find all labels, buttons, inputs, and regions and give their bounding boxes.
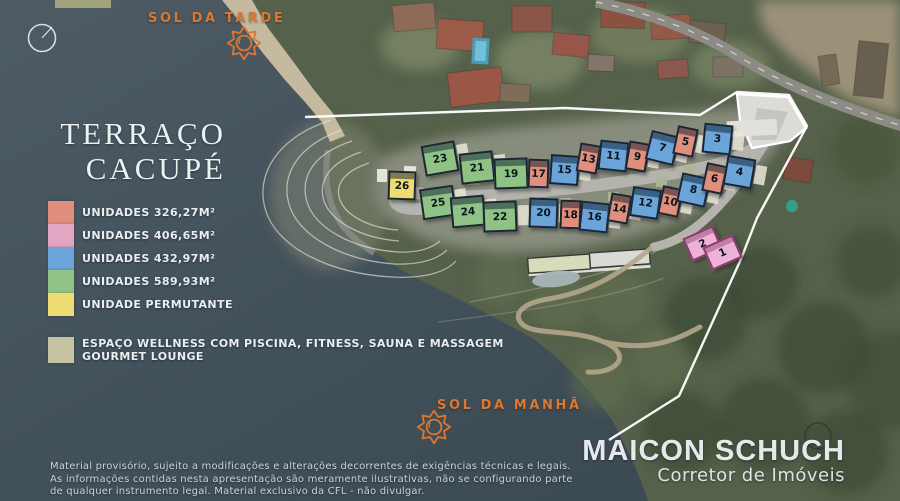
unit-lot-19[interactable]: 19: [493, 157, 528, 189]
legend-label: UNIDADE PERMUTANTE: [82, 298, 233, 311]
legend-swatch-salmon: [48, 201, 74, 224]
unit-lot-26[interactable]: 26: [388, 171, 417, 201]
disclaimer-text: Material provisório, sujeito a modificaç…: [50, 461, 573, 499]
sun-morning-label: SOL DA MANHÃ: [437, 398, 582, 413]
unit-lot-12[interactable]: 12: [629, 186, 662, 220]
unit-number: 26: [394, 179, 409, 192]
legend-item: UNIDADES 432,97M²: [48, 247, 233, 270]
unit-lot-17[interactable]: 17: [528, 159, 550, 189]
sun-afternoon-icon: [226, 25, 262, 61]
unit-number: 25: [430, 196, 446, 210]
legend-swatch-green: [48, 270, 74, 293]
unit-number: 20: [536, 207, 551, 220]
unit-number: 14: [611, 201, 627, 215]
legend-item: UNIDADES 326,27M²: [48, 201, 233, 224]
legend-item: UNIDADE PERMUTANTE: [48, 293, 233, 316]
small-pool: [786, 200, 798, 212]
legend-swatch-blue: [48, 247, 74, 270]
legend-wellness: ESPAÇO WELLNESS COM PISCINA, FITNESS, SA…: [48, 337, 504, 363]
compass-icon: [27, 21, 59, 55]
broker-watermark: MAICON SCHUCH Corretor de Imóveis: [582, 437, 845, 486]
legend-label: UNIDADES 432,97M²: [82, 252, 215, 265]
legend-label: UNIDADES 326,27M²: [82, 206, 215, 219]
project-title: TERRAÇO CACUPÉ: [38, 116, 226, 186]
broker-subtitle: Corretor de Imóveis: [582, 465, 845, 486]
broker-name: MAICON SCHUCH: [582, 437, 845, 465]
legend-label: UNIDADES 406,65M²: [82, 229, 215, 242]
unit-number: 24: [460, 205, 476, 218]
masterplan-image: 2321191715131197532625242220181614121086…: [0, 0, 900, 501]
unit-number: 15: [557, 164, 572, 177]
unit-number: 23: [432, 151, 448, 165]
unit-number: 4: [735, 165, 744, 178]
unit-number: 8: [689, 183, 699, 196]
sun-afternoon-label: SOL DA TARDE: [148, 11, 285, 26]
unit-number: 7: [658, 141, 668, 154]
unit-number: 3: [713, 133, 722, 146]
sun-morning-icon: [416, 409, 452, 445]
unit-number: 21: [469, 161, 485, 174]
partial-legend-block: [55, 0, 111, 8]
unit-lot-3[interactable]: 3: [702, 123, 734, 156]
unit-number: 13: [580, 151, 596, 165]
legend-list: UNIDADES 326,27M²UNIDADES 406,65M²UNIDAD…: [48, 201, 233, 316]
unit-number: 16: [587, 210, 603, 223]
legend-swatch-pink: [48, 224, 74, 247]
legend-item: UNIDADES 589,93M²: [48, 270, 233, 293]
unit-number: 22: [492, 210, 507, 223]
unit-number: 12: [637, 196, 653, 210]
unit-number: 5: [681, 135, 691, 148]
unit-lot-21[interactable]: 21: [458, 150, 495, 184]
unit-lot-23[interactable]: 23: [421, 140, 460, 176]
wellness-swatch: [48, 337, 74, 363]
unit-number: 17: [531, 167, 546, 180]
unit-number: 9: [633, 150, 642, 163]
unit-lot-16[interactable]: 16: [579, 201, 611, 234]
unit-lot-24[interactable]: 24: [450, 195, 487, 229]
unit-number: 19: [503, 167, 518, 180]
legend-item: UNIDADES 406,65M²: [48, 224, 233, 247]
unit-number: 1: [717, 246, 729, 260]
legend-swatch-yellow: [48, 293, 74, 316]
unit-number: 18: [563, 208, 578, 221]
wellness-label: ESPAÇO WELLNESS COM PISCINA, FITNESS, SA…: [82, 337, 504, 363]
unit-lot-20[interactable]: 20: [528, 198, 558, 229]
unit-number: 11: [606, 149, 622, 162]
unit-number: 6: [710, 172, 720, 185]
unit-lot-22[interactable]: 22: [482, 200, 517, 232]
unit-lot-4[interactable]: 4: [723, 155, 757, 190]
legend-label: UNIDADES 589,93M²: [82, 275, 215, 288]
